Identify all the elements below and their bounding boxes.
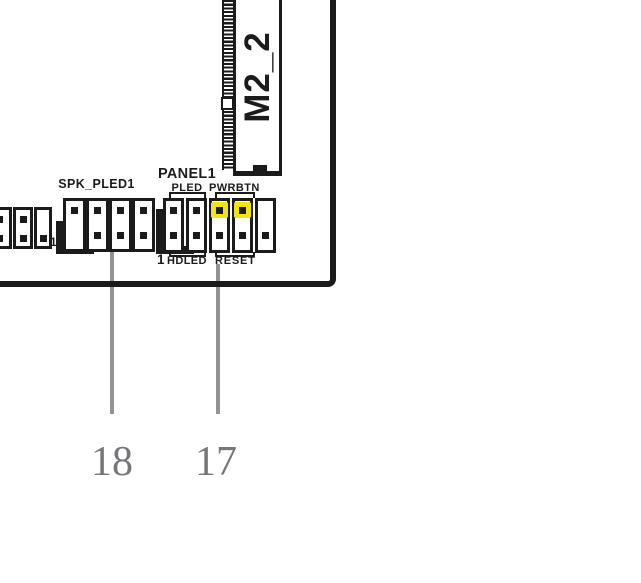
pin	[216, 232, 223, 239]
m2-slot: M2_2	[233, 0, 282, 176]
spk-box-2	[86, 198, 109, 252]
pin	[117, 207, 124, 214]
pin	[20, 235, 27, 242]
spk-box-4	[132, 198, 155, 252]
pin	[71, 207, 78, 214]
pled-group-label: PLED	[167, 182, 207, 194]
left-header-box-2	[13, 207, 33, 249]
spk-pled1-label: SPK_PLED1	[54, 177, 139, 191]
pin	[40, 235, 47, 242]
panel1-pin1-label: 1	[157, 252, 165, 267]
pin	[193, 207, 200, 214]
pin	[20, 216, 27, 223]
panel1-box-5	[255, 198, 276, 253]
panel1-box-3	[209, 198, 230, 253]
pin	[262, 232, 269, 239]
pin	[216, 207, 223, 214]
pwrbtn-group-label: PWRBTN	[209, 182, 259, 194]
m2-slot-tab	[253, 165, 267, 171]
m2-slot-label: M2_2	[238, 31, 278, 123]
panel1-box-2	[186, 198, 207, 253]
pin	[140, 207, 147, 214]
pin	[239, 207, 246, 214]
pin	[170, 207, 177, 214]
pin	[193, 232, 200, 239]
pin	[140, 232, 147, 239]
hdled-group-label: HDLED	[167, 255, 207, 267]
spk-box-1	[63, 198, 86, 252]
callout-number-17: 17	[184, 438, 248, 486]
left-header-box-1	[0, 207, 12, 249]
pin	[170, 232, 177, 239]
spk-box-3	[109, 198, 132, 252]
callout-line-18	[110, 252, 114, 414]
panel1-label: PANEL1	[158, 166, 216, 182]
pin	[94, 232, 101, 239]
pin	[0, 216, 3, 223]
callout-line-17	[216, 264, 220, 414]
pin	[0, 235, 3, 242]
pin	[117, 232, 124, 239]
motherboard-diagram: M2_2 1 SPK_PLED1 PANEL1 PLED PWRBTN	[0, 0, 641, 583]
panel1-box-1	[163, 198, 184, 253]
pin	[239, 232, 246, 239]
panel1-box-4	[232, 198, 253, 253]
callout-number-18: 18	[80, 438, 144, 486]
pin	[94, 207, 101, 214]
reset-group-label: RESET	[215, 255, 256, 267]
